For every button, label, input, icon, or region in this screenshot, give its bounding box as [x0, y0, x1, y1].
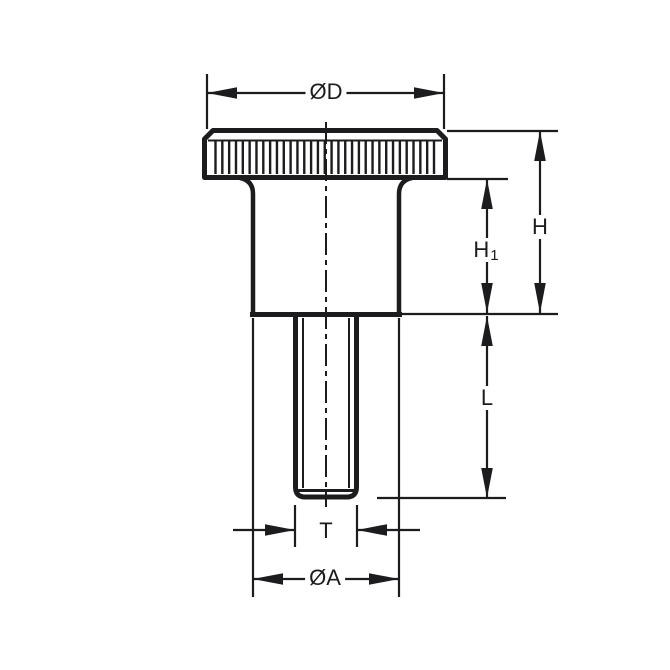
- arrowhead-up: [481, 179, 493, 209]
- label-upper-height: H1: [469, 238, 502, 262]
- arrowhead-down: [534, 283, 546, 313]
- body-right-edge: [399, 178, 412, 312]
- label-hub-diameter: ØA: [305, 566, 345, 590]
- arrowhead-up: [534, 131, 546, 161]
- arrowhead-down: [481, 468, 493, 498]
- arrowhead-right: [369, 573, 399, 585]
- arrowhead-left: [207, 87, 237, 99]
- label-thread-length: L: [477, 386, 497, 410]
- arrowhead-down: [481, 283, 493, 313]
- technical-drawing-canvas: ØD H H1 L T ØA: [0, 0, 670, 670]
- label-thread-diameter: T: [315, 519, 336, 543]
- arrowhead-up: [481, 316, 493, 346]
- body-left-edge: [240, 178, 253, 312]
- arrowhead-right: [265, 524, 295, 536]
- label-head-diameter: ØD: [306, 80, 347, 104]
- arrowhead-left: [357, 524, 387, 536]
- arrowhead-right: [414, 87, 444, 99]
- arrowhead-left: [253, 573, 283, 585]
- label-upper-height-subscript: 1: [490, 247, 498, 264]
- label-total-height: H: [528, 215, 552, 239]
- label-upper-height-main: H: [473, 237, 489, 262]
